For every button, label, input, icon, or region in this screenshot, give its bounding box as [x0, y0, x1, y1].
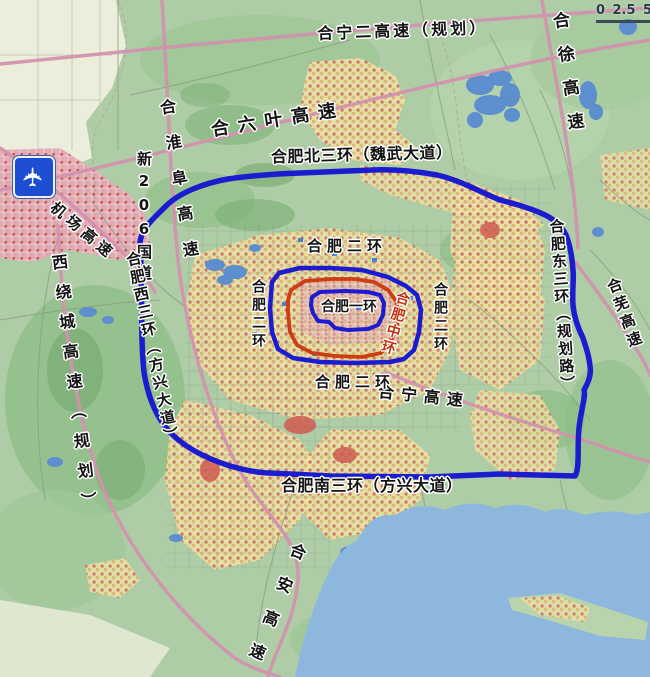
scale-tick-end: 5: [643, 3, 650, 18]
label-second-ring-east: 合肥二环: [433, 282, 447, 354]
label-first-ring: 合肥一环: [321, 300, 377, 314]
scale-tick-mid: 2.5: [612, 3, 635, 18]
scale-bar: 0 2.5 5: [596, 3, 650, 23]
label-south-third-ring: 合肥南三环（方兴大道）: [281, 478, 463, 494]
scale-bar-line: [596, 20, 650, 23]
airport-icon: ✈: [13, 156, 55, 198]
airplane-glyph: ✈: [21, 166, 47, 188]
label-second-ring-north: 合肥二环: [307, 239, 387, 254]
label-second-ring-south: 合肥二环: [315, 375, 395, 390]
scale-tick-0: 0: [596, 3, 605, 18]
label-north-third-ring: 合肥北三环（魏武大道）: [271, 145, 453, 166]
hefei-ring-road-map: ✈ 0 2.5 5 合宁二高速（规划） 合徐高速 合六叶高速 合淮阜高速 新20…: [0, 0, 650, 677]
label-second-ring-west: 合肥二环: [251, 279, 265, 351]
